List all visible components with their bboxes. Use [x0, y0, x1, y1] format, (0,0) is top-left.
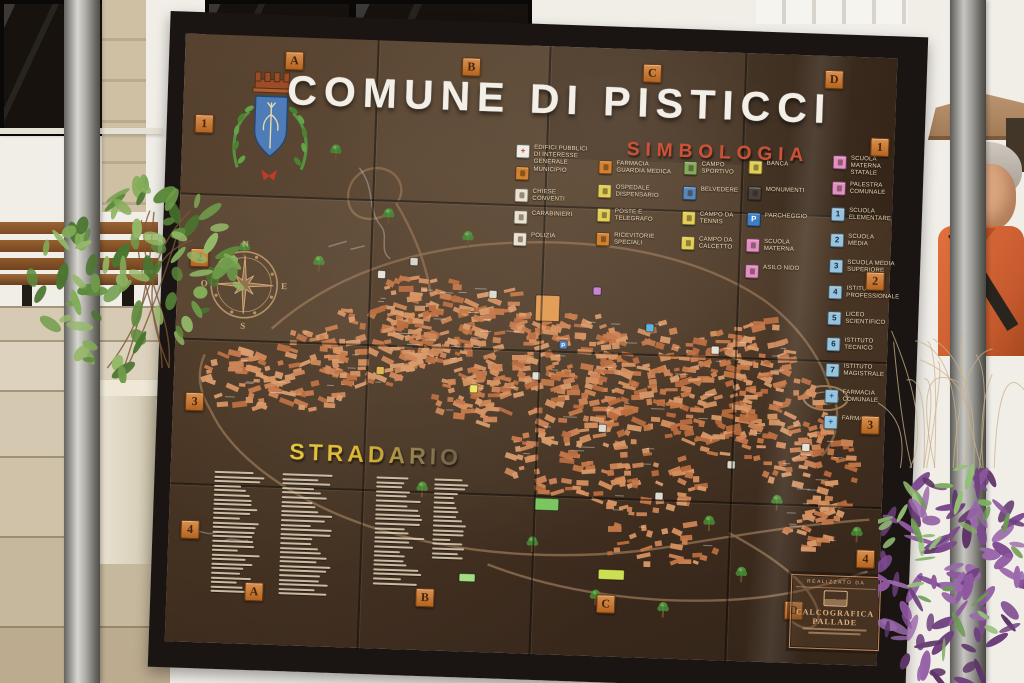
plaque-address-line — [808, 632, 860, 636]
grid-label-top-B: B — [462, 57, 482, 77]
plaque-heading: REALIZZATO DA — [796, 578, 876, 590]
grid-label-left-1: 1 — [194, 114, 214, 134]
purple-plant — [878, 318, 1024, 683]
grid-label-left-4: 4 — [180, 520, 200, 540]
grid-label-right-2: 2 — [865, 271, 885, 291]
grid-label-top-D: D — [824, 70, 844, 90]
grid-label-right-1: 1 — [870, 137, 890, 157]
grid-labels: ABCDABCD12341234 — [165, 34, 898, 666]
railing — [756, 0, 908, 24]
sign-frame: PNSEO — [148, 11, 928, 683]
grid-label-bottom-A: A — [244, 582, 264, 602]
grid-label-bottom-B: B — [415, 588, 435, 608]
grid-label-bottom-C: C — [596, 594, 616, 614]
grid-label-top-C: C — [642, 63, 662, 83]
maker-plaque: REALIZZATO DA CALCOGRAFICA PALLADE — [789, 574, 882, 651]
sign-board: PNSEO — [165, 34, 898, 666]
grid-label-top-A: A — [285, 51, 305, 71]
photo-scene: PNSEO — [0, 0, 1024, 683]
green-plant — [15, 168, 260, 383]
stone-pedestal-shaft — [94, 396, 156, 564]
maker-logo-icon — [823, 590, 848, 607]
map-signboard: PNSEO — [148, 11, 928, 683]
grid-label-right-4: 4 — [856, 549, 876, 569]
grid-label-left-3: 3 — [185, 392, 205, 412]
